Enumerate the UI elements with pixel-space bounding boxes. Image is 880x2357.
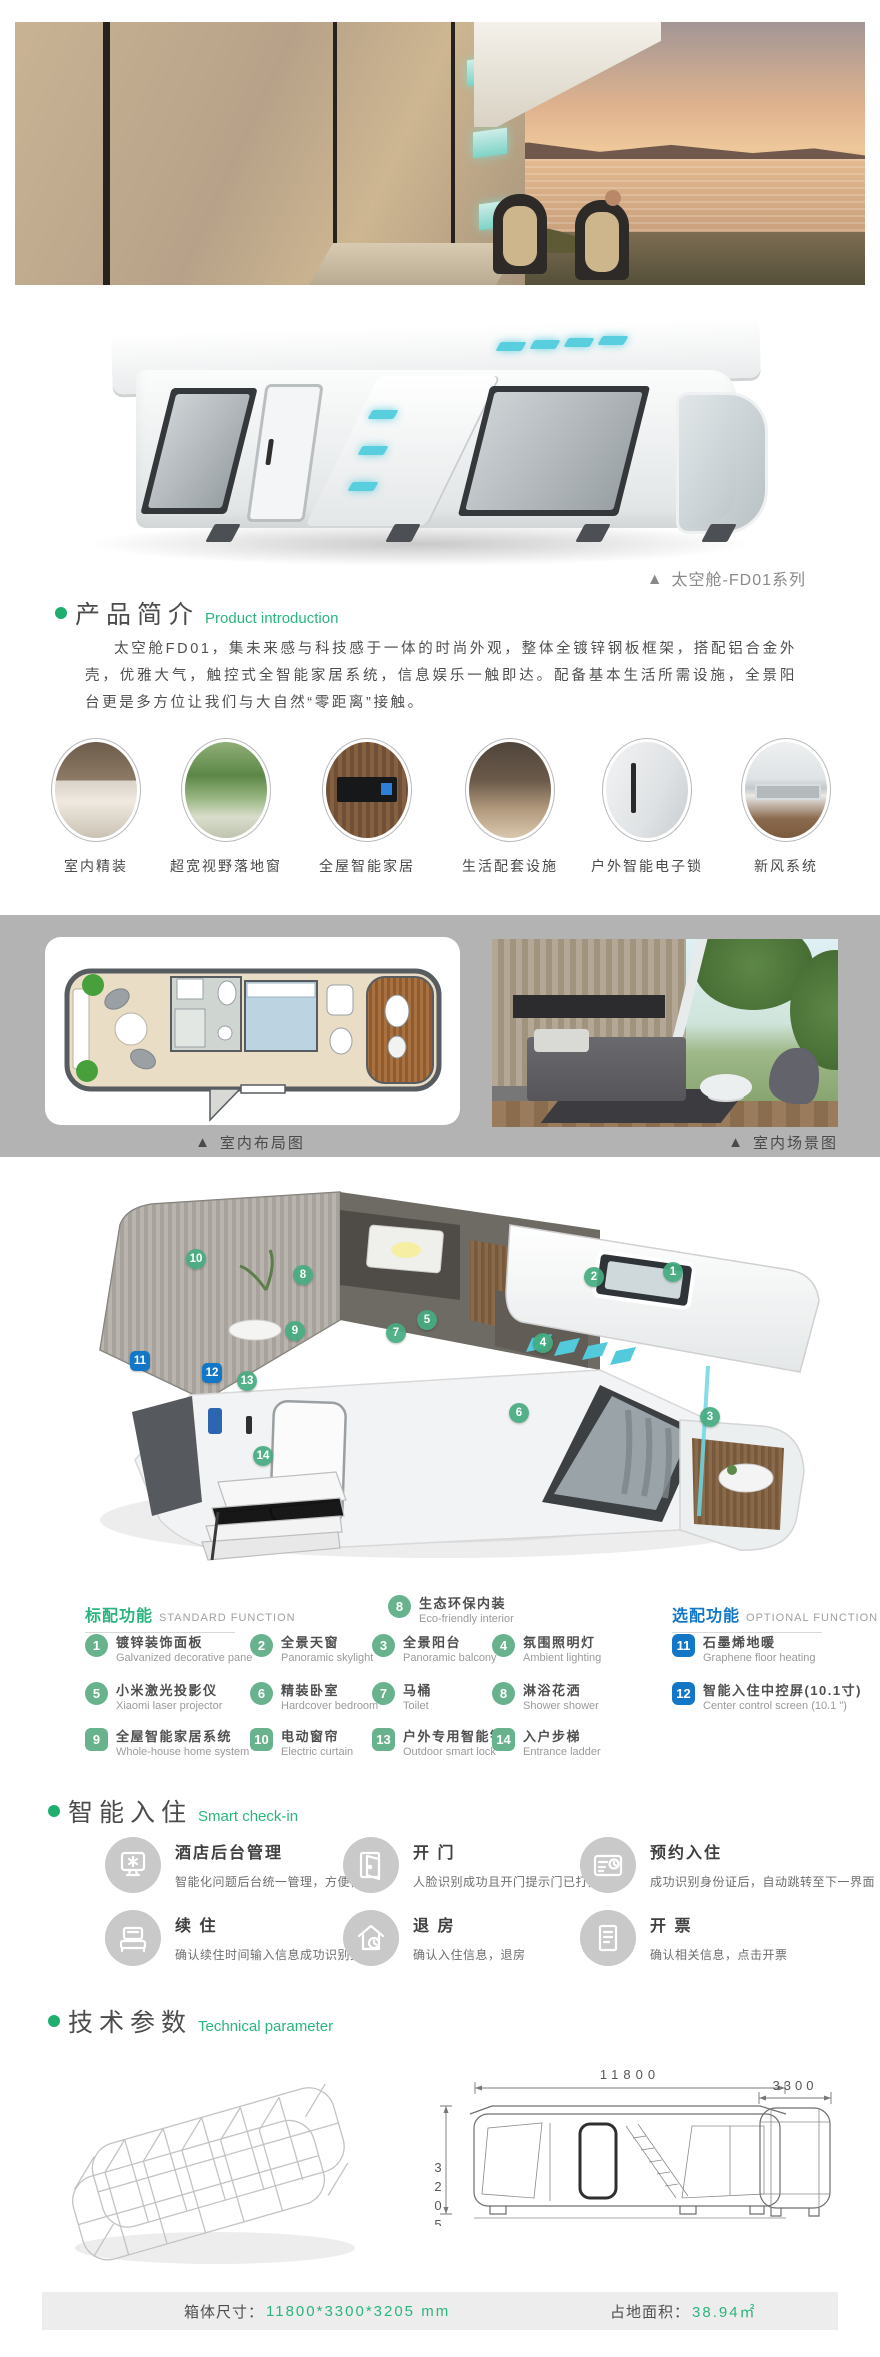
checkin-title-zh: 智能入住 (68, 1793, 192, 1829)
footer-spec-bar: 箱体尺寸：11800*3300*3205 mm 占地面积：38.94㎡ (42, 2292, 838, 2330)
intro-title-zh: 产品简介 (75, 595, 199, 631)
frame-wireframe-drawing (40, 2080, 390, 2275)
callout-5: 5 (417, 1310, 437, 1330)
feature-smart-lock: 户外智能电子锁 (582, 738, 712, 876)
function-item: 10电动窗帘Electric curtain (250, 1726, 353, 1758)
invoice-icon (580, 1910, 636, 1966)
window-mullion (103, 22, 110, 285)
floor-area-spec: 占地面积：38.94㎡ (610, 2292, 757, 2330)
checkin-item-open-door: 开 门人脸识别成功且开门提示门已打开 (343, 1837, 601, 1893)
person-silhouette (605, 190, 621, 206)
callout-2: 2 (584, 1267, 604, 1287)
photo-pillow (534, 1029, 589, 1052)
dim-width: 3300 (773, 2078, 818, 2093)
triangle-marker-icon: ▲ (195, 1134, 212, 1151)
function-number-badge: 10 (250, 1728, 273, 1751)
feature-fresh-air: 新风系统 (721, 738, 851, 876)
function-item: 14入户步梯Entrance ladder (492, 1726, 601, 1758)
optional-function-item: 11石墨烯地暖Graphene floor heating (672, 1632, 816, 1664)
render-shadow (90, 522, 750, 566)
caption-floor-plan: ▲室内布局图 (150, 1132, 350, 1153)
camp-chair (575, 200, 629, 280)
feature-label: 超宽视野落地窗 (161, 856, 291, 876)
function-item: 3全景阳台Panoramic balcony (372, 1632, 497, 1664)
roof-light (495, 342, 526, 351)
checkin-item-backend: 酒店后台管理智能化问题后台统一管理，方便快捷 (105, 1837, 375, 1893)
caption-interior-scene: ▲室内场景图 (640, 1132, 838, 1153)
callout-12: 12 (202, 1363, 222, 1383)
function-item: 8淋浴花洒Shower shower (492, 1680, 599, 1712)
checkin-title-en: Smart check-in (198, 1808, 298, 1825)
optional-function-header: 选配功能OPTIONAL FUNCTION (672, 1602, 878, 1633)
photo-side-table (700, 1074, 752, 1100)
feature-image-interior (51, 738, 141, 842)
kiosk-icon (105, 1837, 161, 1893)
camp-chair (493, 194, 547, 274)
photo-tv-strip (513, 995, 665, 1018)
function-number-badge: 1 (85, 1634, 108, 1657)
callout-7: 7 (386, 1323, 406, 1343)
function-number-badge: 7 (372, 1682, 395, 1705)
lit-niche (473, 128, 507, 159)
series-caption: ▲太空舱-FD01系列 (560, 566, 806, 590)
green-dot-icon (55, 607, 67, 619)
function-number-badge: 8 (388, 1595, 411, 1618)
function-number-badge: 3 (372, 1634, 395, 1657)
checkin-item-reserve: 预约入住成功识别身份证后，自动跳转至下一界面 (580, 1837, 875, 1893)
roof-light (529, 340, 560, 349)
callout-3: 3 (700, 1407, 720, 1427)
function-number-badge: 2 (250, 1634, 273, 1657)
roof-light (597, 336, 628, 345)
function-item: 5小米激光投影仪Xiaomi laser projector (85, 1680, 222, 1712)
function-number-badge: 9 (85, 1728, 108, 1751)
function-number-badge: 13 (372, 1728, 395, 1751)
function-number-badge: 14 (492, 1728, 515, 1751)
fascia-light (347, 482, 378, 491)
exploded-drawing (40, 1170, 840, 1590)
callout-13: 13 (237, 1371, 257, 1391)
dim-length: 11800 (600, 2067, 660, 2082)
feature-label: 生活配套设施 (445, 856, 575, 876)
feature-image-window (181, 738, 271, 842)
function-item: 7马桶Toilet (372, 1680, 432, 1712)
standard-function-header: 标配功能STANDARD FUNCTION (85, 1602, 296, 1633)
feature-image-smart-home (322, 738, 412, 842)
feature-window: 超宽视野落地窗 (161, 738, 291, 876)
callout-9: 9 (285, 1321, 305, 1341)
feature-label: 户外智能电子锁 (582, 856, 712, 876)
roof-light (563, 338, 594, 347)
feature-image-fresh-air (741, 738, 831, 842)
intro-paragraph: 太空舱FD01，集未来感与科技感于一体的时尚外观，整体全镀锌钢板框架，搭配铝合金… (85, 636, 797, 717)
floor-plan-card (45, 937, 460, 1125)
door-handle (265, 439, 274, 465)
green-dot-icon (48, 2015, 60, 2027)
product-detail-page: ▲太空舱-FD01系列 产品简介 Product introduction 太空… (0, 0, 880, 2357)
bed-icon (105, 1910, 161, 1966)
section-heading-intro: 产品简介 Product introduction (55, 595, 338, 631)
feature-label: 全屋智能家居 (302, 856, 432, 876)
callout-11: 11 (130, 1351, 150, 1371)
feature-image-facilities (465, 738, 555, 842)
feature-interior-finish: 室内精装 (31, 738, 161, 876)
fascia-light (357, 446, 388, 455)
hero-deck (309, 243, 520, 285)
feature-smart-home: 全屋智能家居 (302, 738, 432, 876)
function-number-badge: 12 (672, 1682, 695, 1705)
house-clock-icon (343, 1910, 399, 1966)
section-heading-checkin: 智能入住 Smart check-in (48, 1793, 298, 1829)
feature-label: 室内精装 (31, 856, 161, 876)
hero-photo-lakeside-sunset (15, 22, 865, 285)
tech-title-zh: 技术参数 (68, 2003, 192, 2039)
capsule-exterior-render (60, 300, 820, 568)
capsule-window (458, 386, 650, 516)
triangle-marker-icon: ▲ (728, 1134, 745, 1151)
feature-image-lock (602, 738, 692, 842)
callout-10: 10 (186, 1249, 206, 1269)
tech-title-en: Technical parameter (198, 2018, 333, 2035)
function-item: 13户外专用智能锁Outdoor smart lock (372, 1726, 505, 1758)
function-item: 2全景天窗Panoramic skylight (250, 1632, 373, 1664)
function-item: 4氛围照明灯Ambient lighting (492, 1632, 601, 1664)
callout-6: 6 (509, 1403, 529, 1423)
callout-1: 1 (663, 1262, 683, 1282)
function-number-badge: 4 (492, 1634, 515, 1657)
function-number-badge: 11 (672, 1634, 695, 1657)
dim-height: 3205 (431, 2160, 446, 2226)
checkin-item-invoice: 开 票确认相关信息，点击开票 (580, 1910, 788, 1966)
function-number-badge: 8 (492, 1682, 515, 1705)
glass-balcony (676, 392, 768, 534)
function-item: 1镀锌装饰面板Galvanized decorative pane (85, 1632, 252, 1664)
feature-living-facilities: 生活配套设施 (445, 738, 575, 876)
fascia-light (367, 410, 398, 419)
end-elevation-drawing: 3300 (745, 2078, 845, 2233)
callout-8: 8 (293, 1265, 313, 1285)
callout-14: 14 (253, 1446, 273, 1466)
intro-title-en: Product introduction (205, 610, 338, 627)
function-item: 6精装卧室Hardcover bedroom (250, 1680, 378, 1712)
triangle-marker-icon: ▲ (647, 571, 664, 589)
callout-4: 4 (533, 1333, 553, 1353)
function-item-eco: 8 生态环保内装Eco-friendly interior (388, 1593, 514, 1625)
interior-scene-photo (492, 939, 838, 1127)
function-number-badge: 5 (85, 1682, 108, 1705)
box-size-spec: 箱体尺寸：11800*3300*3205 mm (184, 2292, 450, 2330)
feature-label: 新风系统 (721, 856, 851, 876)
id-card-icon (580, 1837, 636, 1893)
function-number-badge: 6 (250, 1682, 273, 1705)
section-heading-tech: 技术参数 Technical parameter (48, 2003, 333, 2039)
floor-plan-drawing (45, 937, 460, 1125)
optional-function-item: 12智能入住中控屏(10.1寸)Center control screen (1… (672, 1680, 862, 1712)
checkin-item-renew: 续 住确认续住时间输入信息成功识别身份 (105, 1910, 375, 1966)
exploded-cutaway-render: 1 2 3 4 5 6 7 8 9 10 11 12 13 14 (40, 1170, 840, 1590)
function-item: 9全屋智能家居系统Whole-house home system (85, 1726, 249, 1758)
green-dot-icon (48, 1805, 60, 1817)
checkin-item-checkout: 退 房确认入住信息，退房 (343, 1910, 526, 1966)
door-icon (343, 1837, 399, 1893)
